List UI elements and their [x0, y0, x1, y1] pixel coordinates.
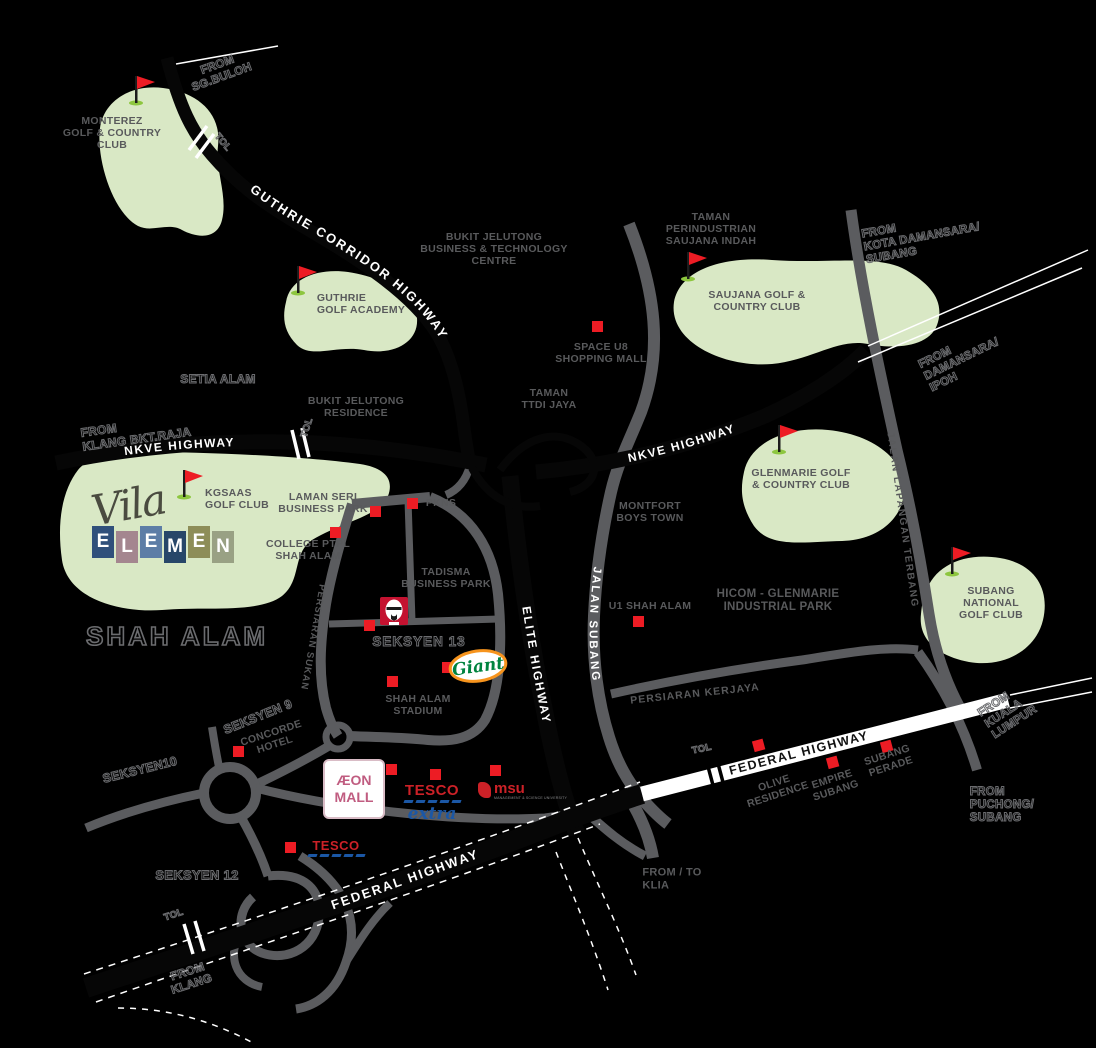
aeon-mall-logo: ÆON MALL	[323, 759, 385, 819]
elemen-tile-m: M	[164, 531, 186, 563]
marker-college-ptpl	[330, 527, 341, 538]
edge-elite-ext-1	[578, 838, 636, 975]
elemen-tile-e1: E	[92, 526, 114, 558]
tesco-logo: TESCO	[303, 838, 369, 857]
tesco-extra-script: extra	[392, 804, 472, 824]
tesco-dashes	[303, 854, 369, 857]
svg-text:NKVE HIGHWAY: NKVE HIGHWAY	[627, 421, 738, 465]
label-stadium: SHAH ALAM STADIUM	[385, 693, 450, 717]
label-subang-national-golf: SUBANG NATIONAL GOLF CLUB	[939, 585, 1044, 621]
aeon-mall-text: MALL	[335, 789, 374, 806]
label-taman-perindustrian: TAMAN PERINDUSTRIAN SAUJANA INDAH	[666, 211, 756, 247]
msu-logo: msu MANAGEMENT & SCIENCE UNIVERSITY	[478, 782, 567, 800]
road-label-nkve-east: NKVE HIGHWAY	[627, 421, 738, 465]
label-seksyen-12: SEKSYEN 12	[155, 869, 238, 884]
label-laman-seri: LAMAN SERI BUSINESS PARK	[278, 491, 367, 515]
road-roundabout-south	[241, 817, 268, 876]
road-persiaran-kerjaya	[611, 649, 918, 694]
marker-empire	[826, 756, 839, 769]
edge-cloverleaf	[118, 1008, 255, 1044]
road-nkve-pkns-link	[446, 466, 470, 495]
label-shah-alam: SHAH ALAM	[86, 622, 268, 652]
marker-msu	[490, 765, 501, 776]
tesco-wordmark: TESCO	[303, 838, 369, 853]
label-taman-ttdi: TAMAN TTDI JAYA	[521, 387, 576, 411]
label-guthrie-academy: GUTHRIE GOLF ACADEMY	[317, 292, 405, 316]
label-montfort: MONTFORT BOYS TOWN	[616, 500, 683, 524]
label-tadisma: TADISMA BUSINESS PARK	[401, 566, 490, 590]
label-seksyen-13: SEKSYEN 13	[372, 634, 465, 650]
label-bukit-jelutong-btc: BUKIT JELUTONG BUSINESS & TECHNOLOGY CEN…	[420, 231, 567, 267]
label-monterez-golf: MONTEREZ GOLF & COUNTRY CLUB	[63, 115, 161, 151]
elemen-logo: E L E M E N	[92, 528, 234, 560]
label-from-to-klia: FROM / TO KLIA	[642, 866, 701, 891]
label-kgsaas: KGSAAS GOLF CLUB	[205, 487, 269, 511]
road-seksyen13-inner-v	[408, 500, 412, 621]
msu-emblem	[478, 782, 491, 798]
elemen-tile-l: L	[116, 531, 138, 563]
marker-u1-shah-alam	[633, 616, 644, 627]
marker-kfc	[364, 620, 375, 631]
edge-elite-ext-2	[556, 852, 608, 990]
road-seksyen10	[86, 793, 204, 828]
marker-olive	[752, 739, 765, 752]
marker-laman-seri	[370, 506, 381, 517]
marker-tesco-extra	[430, 769, 441, 780]
msu-wordmark: msu	[494, 782, 567, 796]
road-seksyen13-inner-h	[329, 619, 499, 624]
aeon-text: ÆON	[337, 772, 372, 789]
label-bukit-jelutong-res: BUKIT JELUTONG RESIDENCE	[308, 395, 404, 419]
label-saujana-golf: SAUJANA GOLF & COUNTRY CLUB	[708, 289, 805, 313]
label-space-u8: SPACE U8 SHOPPING MALL	[555, 341, 646, 365]
label-glenmarie-golf: GLENMARIE GOLF & COUNTRY CLUB	[751, 467, 850, 491]
map-canvas: GUTHRIE CORRIDOR HIGHWAY NKVE HIGHWAY NK…	[0, 0, 1096, 1048]
label-pkns: PKNS	[426, 497, 456, 509]
kfc-logo	[380, 597, 408, 625]
marker-tesco	[285, 842, 296, 853]
green-monterez	[99, 87, 223, 235]
marker-aeon	[386, 764, 397, 775]
tesco-extra-dashes	[392, 800, 472, 803]
elemen-tile-n: N	[212, 531, 234, 563]
marker-space-u8	[592, 321, 603, 332]
tesco-extra-logo: TESCO extra	[392, 782, 472, 824]
elemen-tile-e3: E	[188, 526, 210, 558]
label-setia-alam: SETIA ALAM	[180, 373, 255, 387]
label-hicom: HICOM - GLENMARIE INDUSTRIAL PARK	[717, 588, 840, 614]
tesco-extra-wordmark: TESCO	[392, 782, 472, 799]
msu-tagline: MANAGEMENT & SCIENCE UNIVERSITY	[494, 796, 567, 800]
label-u1-shah-alam: U1 SHAH ALAM	[609, 600, 692, 612]
road-roundabout-north	[212, 727, 219, 767]
location-map: GUTHRIE CORRIDOR HIGHWAY NKVE HIGHWAY NK…	[0, 0, 1096, 1048]
elemen-tile-e2: E	[140, 526, 162, 558]
label-from-puchong: FROM PUCHONG/ SUBANG	[970, 786, 1034, 826]
marker-pkns	[407, 498, 418, 509]
marker-stadium	[387, 676, 398, 687]
label-college-ptpl: COLLEGE PTPL SHAH ALAM	[266, 538, 350, 562]
roundabout-seksyen9	[204, 767, 256, 819]
